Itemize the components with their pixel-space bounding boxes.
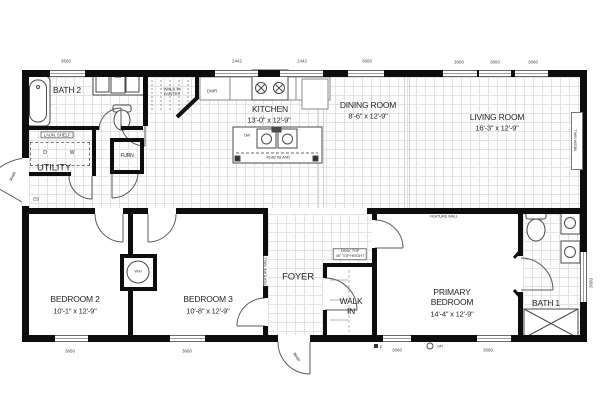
dwr-label: DWR <box>207 88 217 93</box>
wall-furn-left <box>110 138 114 174</box>
window-primary-1 <box>383 335 411 342</box>
dryer-label: D <box>43 150 46 156</box>
wh-label: W/H <box>134 270 141 275</box>
es-label: ES <box>33 196 39 201</box>
wall-divider-a <box>29 208 95 214</box>
dim-top-7: 3660 <box>528 59 538 64</box>
window-kitchen-1 <box>215 70 258 77</box>
room-label-utility: UTILITY <box>37 162 71 173</box>
room-label-bath2: BATH 2 <box>53 85 81 95</box>
room-label-bath1: BATH 1 <box>532 298 560 308</box>
wall-walkin-left-lower <box>323 310 327 335</box>
wall-walkin-left-upper <box>323 263 327 278</box>
wall-utility-right <box>92 126 96 176</box>
laun-shelf-label: LAUN. SHELF <box>41 131 74 138</box>
outlet-symbols <box>374 343 433 349</box>
door-swing-bath1 <box>521 258 553 290</box>
room-label-kitchen: KITCHEN <box>252 104 288 114</box>
exterior-wall-left <box>22 70 29 342</box>
dim-bottom-3: 3660 <box>392 347 402 352</box>
bedroom2-dims: 10'-1" x 12'-9" <box>53 307 96 316</box>
door-swing-bedroom3-foyer <box>237 298 265 326</box>
front-door-opening <box>278 335 310 342</box>
wall-wh-closet-bottom <box>120 287 157 291</box>
wall-pantry-right <box>195 70 199 98</box>
bathtub-icon <box>26 76 50 126</box>
room-label-primary: PRIMARY BEDROOM <box>431 287 474 307</box>
room-label-dining: DINING ROOM <box>340 100 396 110</box>
dw-label: DW <box>244 134 250 139</box>
dim-top-4: 3660 <box>362 58 372 63</box>
wall-divider-b <box>123 208 148 214</box>
dim-bottom-4: 3660 <box>483 347 493 352</box>
primary-dims: 14'-4" x 12'-9" <box>430 310 473 319</box>
window-dining <box>348 70 384 77</box>
dim-right: 3660 <box>588 278 593 288</box>
door-swing-bedroom2 <box>95 214 123 242</box>
washer-label: W <box>70 150 75 156</box>
f-outlet-label: F <box>380 344 383 349</box>
room-label-foyer: FOYER <box>282 271 314 282</box>
dim-top-2: 2442 <box>232 58 242 63</box>
bath1-chamfer-jambs <box>514 250 521 298</box>
window-bedroom2 <box>55 335 88 342</box>
door-swing-furn <box>112 172 138 198</box>
left-door-opening <box>22 158 29 206</box>
pantry-label: WALK IN PANTRY <box>164 87 181 98</box>
wall-wh-closet-top <box>120 254 157 258</box>
feature-wall-foyer-label: FEATURE WALL <box>264 256 269 286</box>
door-swing-primary <box>375 220 403 248</box>
wall-wh-closet-right <box>153 254 157 291</box>
living-dims: 16'-3" x 12'-9" <box>475 124 518 133</box>
bath1-toilet-icon <box>526 211 546 241</box>
wall-primary-left-upper <box>372 214 377 220</box>
wall-bed2-bed3-lower <box>128 291 133 335</box>
dim-top-3: 2442 <box>297 58 307 63</box>
wall-bath2-bottom <box>29 126 99 130</box>
bedroom3-dims: 10'-8" x 12'-9" <box>186 307 229 316</box>
dim-top-5: 3660 <box>454 59 464 64</box>
gfi-label: GFI <box>437 345 443 350</box>
door-swing-utility <box>69 176 92 199</box>
furn-label: FURN <box>120 153 133 159</box>
wall-furn-top <box>110 138 144 142</box>
wall-wh-closet-left <box>120 254 124 291</box>
wall-divider-d <box>367 208 580 214</box>
feature-wall-primary-label: FEATURE WALL <box>429 215 459 220</box>
window-living-2 <box>479 70 511 77</box>
wall-divider-c <box>176 208 268 214</box>
bath1-sinks-icon <box>561 212 580 263</box>
dim-top-1: 3660 <box>61 58 71 63</box>
shower-icon <box>524 309 578 338</box>
window-living-1 <box>443 70 477 77</box>
wall-bath2-right <box>143 70 148 126</box>
island-label: 42x82 ISLAND <box>266 156 290 161</box>
window-bath2 <box>50 70 85 77</box>
floor-plan: DESK TOP 36" TOP HEIGHT BATH 2 LAUN. SHE… <box>0 0 600 409</box>
door-swing-bedroom3 <box>148 214 176 242</box>
wall-furn-right <box>140 138 144 174</box>
wall-bed3-foyer-lower <box>263 326 268 335</box>
wall-bath2-bottom-stub <box>121 126 143 130</box>
room-label-walkin: WALK IN <box>340 296 363 316</box>
window-kitchen-2 <box>280 70 323 77</box>
wall-primary-left-lower <box>372 248 377 335</box>
room-label-bedroom3: BEDROOM 3 <box>183 294 232 304</box>
kitchen-dims: 13'-0" x 12'-9" <box>247 116 290 125</box>
dining-dims: 8'-6" x 12'-9" <box>348 112 387 121</box>
wall-bed2-bed3-upper <box>128 214 133 254</box>
room-label-living: LIVING ROOM <box>470 112 524 122</box>
wall-primary-bath1-upper <box>518 214 523 256</box>
desk-label: DESK TOP 36" TOP HEIGHT <box>333 248 367 260</box>
media-wall-label: MEDIA WALL <box>574 129 579 151</box>
wall-walkin-top <box>323 263 377 267</box>
dim-bottom-2: 3660 <box>182 348 192 353</box>
room-label-bedroom2: BEDROOM 2 <box>50 294 99 304</box>
wall-furn-bottom <box>110 170 144 174</box>
dim-bottom-1: 3660 <box>65 348 75 353</box>
window-living-3 <box>515 70 548 77</box>
window-primary-2 <box>477 335 511 342</box>
wall-primary-bath1-lower <box>518 292 523 335</box>
window-bedroom3 <box>170 335 205 342</box>
dim-top-6: 3660 <box>490 59 500 64</box>
window-bath1-right <box>580 252 587 302</box>
